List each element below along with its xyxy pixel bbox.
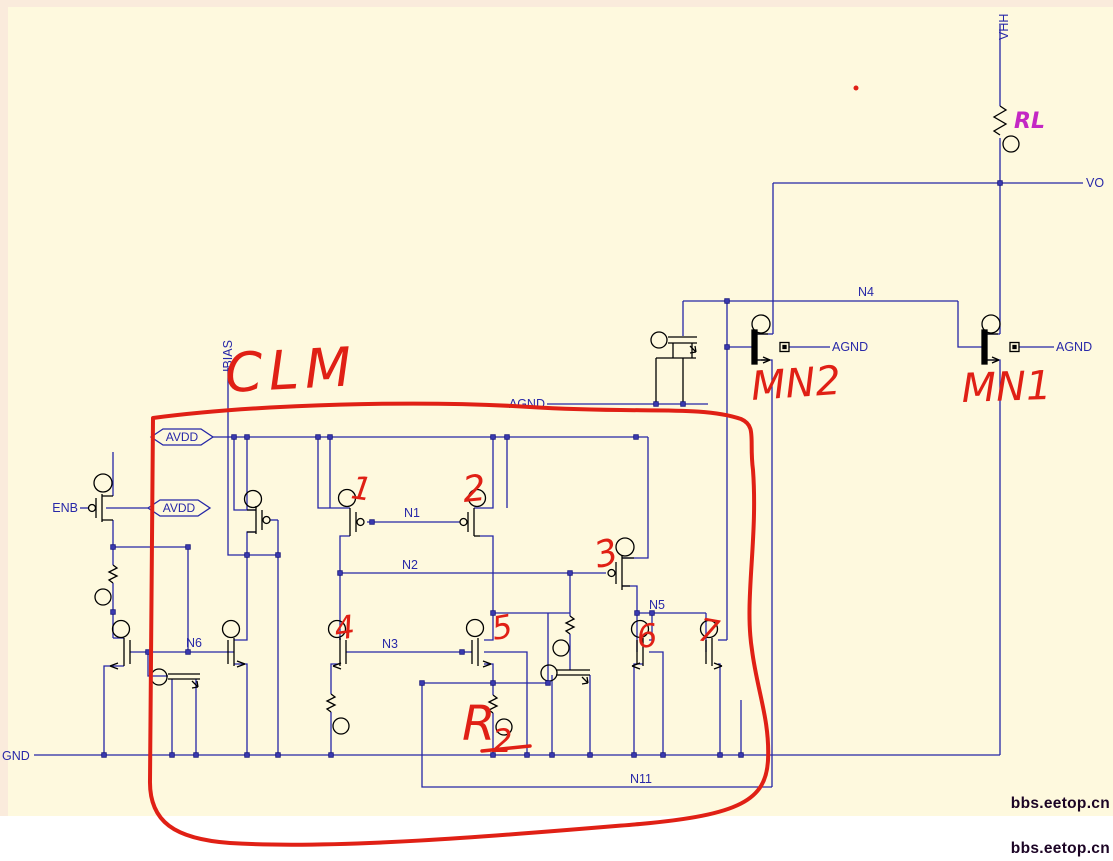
watermark-text: bbs.eetop.cn <box>1011 840 1110 857</box>
thick-gate-bar <box>752 330 757 364</box>
net-label-n6: N6 <box>186 636 202 650</box>
agnd-label-mn1: AGND <box>1056 340 1092 354</box>
red-label-mn1: MN1 <box>961 363 1052 412</box>
port-label-enb: ENB <box>52 501 78 515</box>
red-label-clm: CLM <box>223 335 359 405</box>
schematic-canvas: VHH VO N4 AGND AGND AGND IBIAS ENB AVDD … <box>0 0 1113 861</box>
schematic-screenshot: VHH VO N4 AGND AGND AGND IBIAS ENB AVDD … <box>0 0 1113 861</box>
red-number-2: 2 <box>461 468 488 511</box>
pin-label-avdd-rail: AVDD <box>166 430 199 444</box>
port-label-vo: VO <box>1086 176 1104 190</box>
net-label-n11: N11 <box>630 772 652 786</box>
red-label-r2-sub: 2 <box>492 722 512 760</box>
port-label-gnd: GND <box>2 749 30 763</box>
pin-label-avdd-enb: AVDD <box>163 501 196 515</box>
red-label-r2: R <box>462 696 495 752</box>
left-border-strip <box>0 0 8 816</box>
net-label-n1: N1 <box>404 506 420 520</box>
red-label-mn2: MN2 <box>749 358 842 410</box>
net-label-n3: N3 <box>382 637 398 651</box>
red-number-6: 6 <box>635 616 659 656</box>
port-label-vhh: VHH <box>997 14 1011 40</box>
thick-gate-bar <box>982 330 987 364</box>
net-label-n2: N2 <box>402 558 418 572</box>
red-dot <box>854 86 859 91</box>
agnd-label-mn2: AGND <box>832 340 868 354</box>
net-label-n5: N5 <box>649 598 665 612</box>
top-border-strip <box>0 0 1113 7</box>
net-label-n4: N4 <box>858 285 874 299</box>
watermark-text: bbs.eetop.cn <box>1011 795 1110 812</box>
magenta-label-rl: RL <box>1014 109 1045 134</box>
